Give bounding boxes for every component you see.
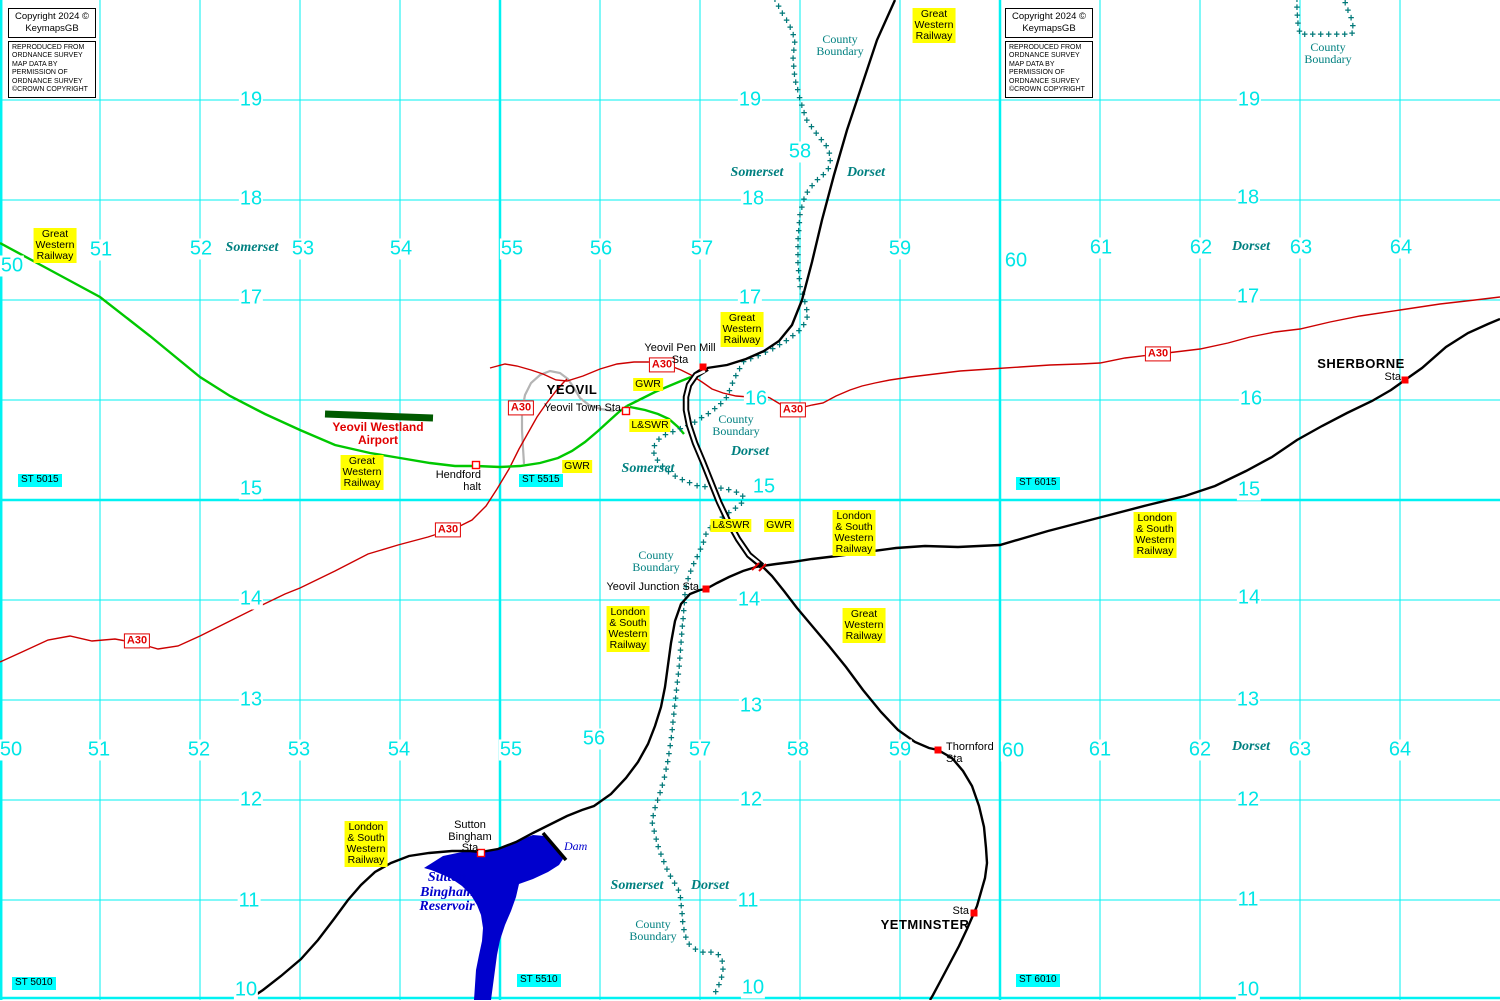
grid-number: 14 [239, 589, 263, 610]
grid-number: 53 [287, 740, 311, 761]
station-label: Hendfordhalt [436, 470, 481, 493]
county-name: Dorset [731, 445, 769, 460]
grid-number: 19 [239, 90, 263, 111]
grid-number: 55 [499, 740, 523, 761]
grid-number: 60 [1004, 251, 1028, 272]
grid-number: 62 [1188, 740, 1212, 761]
county-name: Somerset [731, 166, 784, 181]
grid-number: 19 [1237, 90, 1261, 111]
grid-number: 62 [1189, 238, 1213, 259]
grid-number: 54 [389, 239, 413, 260]
grid-number: 19 [738, 90, 762, 111]
grid-number: 63 [1289, 238, 1313, 259]
county-name: Dorset [847, 166, 885, 181]
map-canvas: ++++++++++++++++++++++++++++++++++++++++… [0, 0, 1500, 1000]
railway-label: London& SouthWesternRailway [607, 606, 650, 652]
grid-number: 63 [1288, 740, 1312, 761]
reservoir-label: SuttonBinghamReservoir [419, 871, 474, 915]
grid-number: 54 [387, 740, 411, 761]
grid-number: 50 [0, 256, 24, 277]
railway-label: GreatWesternRailway [34, 228, 77, 263]
ordnance-survey-notice: REPRODUCED FROMORDNANCE SURVEYMAP DATA B… [8, 41, 96, 98]
grid-number: 55 [500, 239, 524, 260]
road-sign-a30: A30 [780, 402, 806, 417]
copyright-notice: Copyright 2024 ©KeymapsGB [8, 8, 96, 38]
grid-number: 14 [1237, 588, 1261, 609]
railway-label: L&SWR [629, 419, 670, 432]
railway-label: GreatWesternRailway [721, 312, 764, 347]
grid-number: 52 [189, 239, 213, 260]
county-boundary-label: CountyBoundary [1304, 41, 1351, 65]
grid-number: 15 [752, 477, 776, 498]
copyright-notice: Copyright 2024 ©KeymapsGB [1005, 8, 1093, 38]
station-label: Yeovil Town Sta [544, 403, 621, 415]
grid-number: 56 [582, 729, 606, 750]
grid-reference: ST 5015 [18, 474, 62, 487]
road-sign-a30: A30 [508, 400, 534, 415]
grid-number: 11 [238, 891, 261, 912]
grid-number: 17 [239, 288, 263, 309]
county-boundary-label: CountyBoundary [629, 918, 676, 942]
grid-number: 57 [690, 239, 714, 260]
town-name: YEOVIL [547, 383, 598, 397]
station-label: SuttonBinghamSta [448, 820, 491, 855]
county-name: Dorset [1232, 740, 1270, 755]
grid-number: 57 [688, 740, 712, 761]
grid-number: 59 [888, 740, 912, 761]
station-label: Yeovil Junction Sta [606, 582, 699, 594]
grid-number: 10 [1236, 980, 1260, 1001]
county-name: Dorset [1232, 240, 1270, 255]
airport-label: Yeovil WestlandAirport [332, 421, 423, 446]
grid-number: 58 [786, 740, 810, 761]
grid-number: 12 [739, 790, 763, 811]
grid-number: 12 [239, 790, 263, 811]
map-labels: Copyright 2024 ©KeymapsGBREPRODUCED FROM… [0, 0, 1500, 1000]
road-sign-a30: A30 [435, 522, 461, 537]
railway-label: London& SouthWesternRailway [345, 821, 388, 867]
town-name: SHERBORNE [1317, 357, 1405, 371]
town-name: YETMINSTER [881, 918, 970, 932]
grid-number: 50 [0, 740, 23, 761]
railway-label: London& SouthWesternRailway [833, 510, 876, 556]
ordnance-survey-notice: REPRODUCED FROMORDNANCE SURVEYMAP DATA B… [1005, 41, 1093, 98]
grid-number: 51 [89, 240, 113, 261]
grid-number: 56 [589, 239, 613, 260]
grid-number: 17 [1236, 287, 1260, 308]
grid-number: 18 [1236, 188, 1260, 209]
grid-number: 61 [1089, 238, 1113, 259]
grid-reference: ST 5010 [12, 977, 56, 990]
grid-number: 14 [737, 590, 761, 611]
grid-reference: ST 5515 [519, 474, 563, 487]
station-label: ThornfordSta [946, 742, 994, 765]
railway-label: GreatWesternRailway [843, 608, 886, 643]
grid-number: 64 [1388, 740, 1412, 761]
station-label: Sta [952, 906, 969, 918]
grid-number: 13 [739, 696, 763, 717]
grid-number: 17 [738, 288, 762, 309]
dam-label: Dam [564, 840, 587, 853]
grid-number: 13 [239, 690, 263, 711]
railway-label: GWR [764, 519, 794, 532]
grid-number: 10 [234, 980, 258, 1001]
grid-number: 60 [1001, 741, 1025, 762]
grid-number: 61 [1088, 740, 1112, 761]
county-name: Somerset [611, 879, 664, 894]
railway-label: GreatWesternRailway [913, 8, 956, 43]
grid-reference: ST 5510 [517, 974, 561, 987]
county-name: Dorset [691, 879, 729, 894]
grid-reference: ST 6010 [1016, 974, 1060, 987]
county-boundary-label: CountyBoundary [816, 33, 863, 57]
grid-number: 52 [187, 740, 211, 761]
copyright-block: Copyright 2024 ©KeymapsGBREPRODUCED FROM… [8, 8, 96, 98]
grid-number: 51 [87, 740, 111, 761]
copyright-block: Copyright 2024 ©KeymapsGBREPRODUCED FROM… [1005, 8, 1093, 98]
grid-number: 59 [888, 239, 912, 260]
county-name: Somerset [622, 462, 675, 477]
road-sign-a30: A30 [124, 633, 150, 648]
grid-number: 13 [1236, 690, 1260, 711]
grid-number: 16 [1239, 389, 1263, 410]
grid-number: 15 [1237, 480, 1261, 501]
county-name: Somerset [226, 241, 279, 256]
grid-number: 64 [1389, 238, 1413, 259]
grid-number: 18 [741, 189, 765, 210]
railway-label: London& SouthWesternRailway [1134, 512, 1177, 558]
station-label: Sta [1384, 372, 1401, 384]
road-sign-a30: A30 [1145, 346, 1171, 361]
grid-number: 10 [741, 978, 765, 999]
grid-number: 16 [744, 389, 768, 410]
station-label: Yeovil Pen MillSta [644, 343, 715, 366]
county-boundary-label: CountyBoundary [712, 413, 759, 437]
grid-number: 12 [1236, 790, 1260, 811]
grid-number: 11 [1237, 890, 1260, 911]
railway-label: L&SWR [710, 519, 751, 532]
railway-label: GWR [562, 460, 592, 473]
railway-label: GWR [633, 378, 663, 391]
county-boundary-label: CountyBoundary [632, 549, 679, 573]
grid-number: 53 [291, 239, 315, 260]
railway-label: GreatWesternRailway [341, 455, 384, 490]
grid-number: 11 [737, 891, 760, 912]
grid-number: 15 [239, 479, 263, 500]
grid-number: 18 [239, 189, 263, 210]
grid-reference: ST 6015 [1016, 477, 1060, 490]
grid-number: 58 [788, 142, 812, 163]
